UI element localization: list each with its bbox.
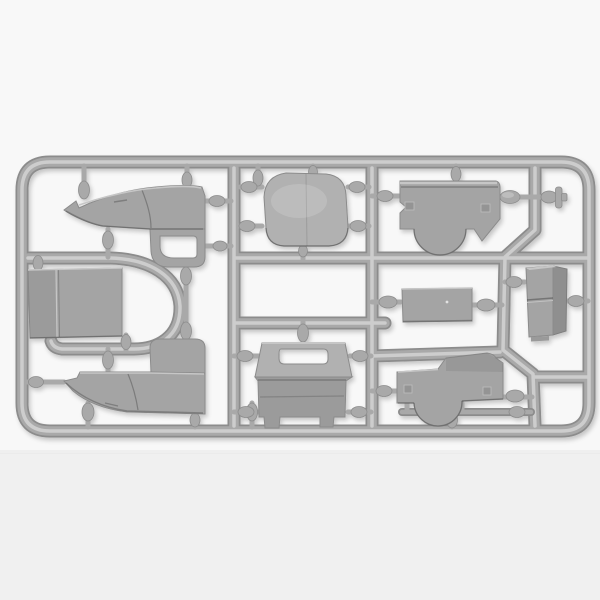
part-tank-box: Fuel tank / battery box	[526, 266, 567, 342]
background-edge-line	[0, 450, 600, 454]
part-roof-panel: Cab roof panel	[264, 173, 348, 246]
photo: Gray plastic injection-molded sprue (par…	[0, 0, 600, 600]
part-flat-plate: Flat rectangular plate	[402, 288, 472, 322]
part-floor-panel: Flat floor / door panel with seam	[28, 268, 122, 338]
sprue-photo: Gray plastic injection-molded sprue (par…	[0, 0, 600, 600]
background-shade-band	[0, 453, 600, 600]
